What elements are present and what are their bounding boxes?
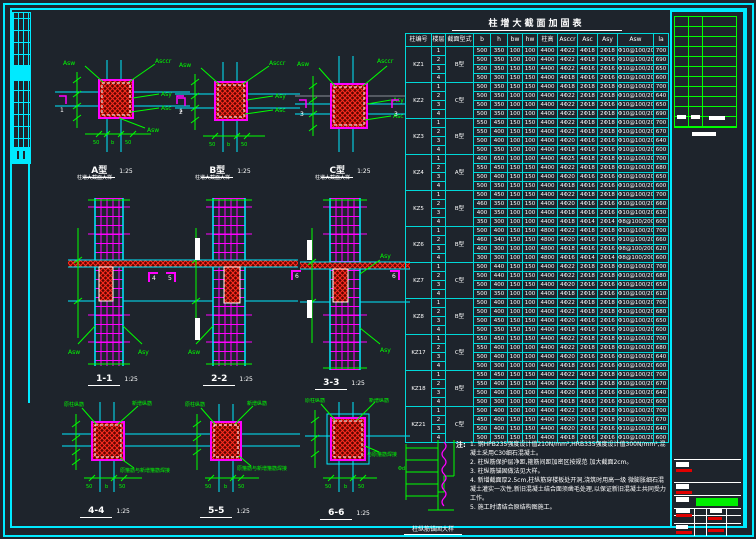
floor-cell: 1: [432, 47, 446, 56]
dim-50: 50: [325, 484, 331, 490]
table-cell: 4400: [538, 74, 558, 83]
table-cell: 300: [491, 74, 508, 83]
figure-name: 柱纵筋锚固大样: [404, 526, 462, 535]
notes-block: 注: 1. 钢HPB235强度设计值210N/mm²,HRB335强度设计值30…: [470, 440, 668, 512]
table-cell: 4Φ16: [578, 137, 598, 146]
table-cell: 100: [508, 353, 523, 362]
label-asy: Asy: [138, 349, 149, 356]
table-cell: 640: [654, 425, 669, 434]
table-cell: 4Φ20: [558, 425, 578, 434]
table-cell: 150: [508, 326, 523, 335]
table-cell: 2Φ18: [598, 308, 618, 317]
table-cell: 2Φ18: [598, 371, 618, 380]
table-cell: 4Φ16: [578, 245, 598, 254]
left-strip-line: [28, 163, 30, 403]
table-cell: 500: [474, 74, 491, 83]
callout-1: 1: [60, 107, 64, 114]
table-row: 340030010010048004Φ184Φ162Φ16Φ8@100/2006…: [406, 245, 669, 254]
table-cell: 350: [491, 200, 508, 209]
table-cell: 2Φ18: [578, 344, 598, 353]
section-6-6-drawing: 原柱纵筋 新增纵筋 与原箍筋焊接 50 b 50: [305, 398, 410, 498]
table-cell: 150: [508, 182, 523, 191]
figure-title: 3-31:25: [300, 370, 380, 389]
table-cell: 500: [474, 173, 491, 182]
table-cell: 2Φ16: [578, 425, 598, 434]
table-cell: 4800: [538, 245, 558, 254]
table-cell: 4Φ22: [558, 164, 578, 173]
table-cell: Φ10@100/200: [618, 416, 654, 425]
table-cell: 150: [508, 416, 523, 425]
figure-scale: 1:25: [351, 380, 364, 387]
table-cell: 450: [491, 335, 508, 344]
table-cell: 2Φ18: [598, 155, 618, 164]
table-cell: 100: [523, 47, 538, 56]
table-cell: 670: [654, 416, 669, 425]
table-cell: 100: [508, 137, 523, 146]
section-type-cell: A型: [446, 155, 474, 191]
table-row: KZ71C型50044015015044004Φ222Φ182Φ18Φ10@10…: [406, 263, 669, 272]
label-original-bars: 原柱纵筋: [64, 401, 84, 408]
table-cell: 2Φ16: [598, 326, 618, 335]
table-cell: 2Φ16: [598, 362, 618, 371]
table-row: KZ181B型55045015015044004Φ224Φ182Φ18Φ10@1…: [406, 371, 669, 380]
table-cell: 2Φ16: [578, 281, 598, 290]
table-cell: Φ10@100/200: [618, 371, 654, 380]
figure-title: 1-11:25: [68, 366, 158, 385]
table-cell: 500: [474, 56, 491, 65]
table-cell: 500: [474, 92, 491, 101]
table-cell: 2Φ16: [598, 182, 618, 191]
table-cell: 4Φ16: [578, 317, 598, 326]
strip-notch: [17, 151, 19, 159]
floor-cell: 3: [432, 353, 446, 362]
table-cell: 150: [508, 335, 523, 344]
floor-cell: 4: [432, 182, 446, 191]
table-cell: 670: [654, 128, 669, 137]
title-block-label: [676, 484, 689, 489]
revision-table-line: [702, 17, 703, 127]
table-cell: 4400: [538, 407, 558, 416]
table-cell: 2Φ14: [598, 218, 618, 227]
strip-notch: [23, 151, 25, 159]
signature-text: [709, 116, 725, 120]
label-asc: Asc: [275, 107, 286, 114]
table-cell: 700: [654, 83, 669, 92]
table-cell: Φ10@100/200: [618, 335, 654, 344]
table-cell: 4Φ22: [558, 371, 578, 380]
table-cell: 150: [508, 236, 523, 245]
table-cell: 500: [474, 83, 491, 92]
table-cell: 4Φ22: [558, 191, 578, 200]
table-cell: 2Φ18: [578, 407, 598, 416]
figure-scale: 1:25: [357, 168, 370, 175]
table-cell: 4400: [538, 191, 558, 200]
dim-50: 50: [119, 484, 125, 490]
table-cell: 100: [508, 344, 523, 353]
table-cell: 4400: [538, 65, 558, 74]
table-cell: 2Φ18: [598, 272, 618, 281]
table-cell: 100: [508, 308, 523, 317]
label-asw: Asw: [63, 60, 75, 67]
title-block-line: [706, 508, 707, 536]
table-cell: 150: [523, 83, 538, 92]
table-cell: 500: [474, 182, 491, 191]
section-type-cell: B型: [446, 119, 474, 155]
table-cell: 550: [474, 335, 491, 344]
table-cell: 150: [523, 182, 538, 191]
table-header-cell: h: [491, 34, 508, 47]
table-cell: 2Φ16: [598, 353, 618, 362]
signature-text: [691, 115, 700, 119]
floor-cell: 2: [432, 272, 446, 281]
table-cell: 450: [474, 416, 491, 425]
drawing-title-bar: [696, 498, 738, 506]
table-cell: 700: [654, 371, 669, 380]
table-cell: 2Φ18: [598, 416, 618, 425]
table-cell: Φ10@100/200: [618, 263, 654, 272]
table-cell: 4400: [538, 272, 558, 281]
table-cell: 400: [491, 425, 508, 434]
floor-cell: 4: [432, 254, 446, 263]
table-cell: 660: [654, 236, 669, 245]
table-cell: 500: [474, 110, 491, 119]
table-cell: 150: [508, 227, 523, 236]
table-cell: 100: [508, 155, 523, 164]
table-cell: 440: [491, 272, 508, 281]
elevation-3-3-figure: Asy Asy 3-31:25: [300, 198, 410, 392]
floor-cell: 1: [432, 119, 446, 128]
table-cell: 500: [474, 308, 491, 317]
floor-cell: 4: [432, 398, 446, 407]
notes-heading: 注:: [456, 440, 466, 450]
table-cell: 2Φ16: [578, 362, 598, 371]
table-header-cell: Asccr: [558, 34, 578, 47]
figure-name: 4-4: [80, 506, 112, 518]
column-id-cell: KZ8: [406, 299, 432, 335]
title-block-label: [676, 497, 689, 502]
table-row: 430030010010048004Φ164Φ142Φ14Φ8@100/2006…: [406, 254, 669, 263]
floor-cell: 1: [432, 371, 446, 380]
table-cell: 150: [508, 263, 523, 272]
table-row: KZ211C型50040010010044004Φ222Φ182Φ18Φ10@1…: [406, 407, 669, 416]
title-block-label: [710, 509, 722, 513]
table-cell: 100: [523, 92, 538, 101]
table-cell: 100: [508, 92, 523, 101]
table-cell: Φ10@100/200: [618, 200, 654, 209]
title-block-label: [676, 509, 690, 513]
note-item: 2. 柱纵筋保护层净距,箍筋间距加密区按规范 加大截面2cm。: [470, 458, 668, 467]
table-cell: 150: [523, 326, 538, 335]
label-new-bars: 新增纵筋: [247, 400, 267, 407]
table-cell: 2Φ18: [598, 227, 618, 236]
table-row: 340035010010044004Φ184Φ162Φ16Φ10@100/200…: [406, 209, 669, 218]
table-header-cell: hw: [523, 34, 538, 47]
table-cell: Φ10@100/200: [618, 110, 654, 119]
table-header-cell: 楼层: [432, 34, 446, 47]
elevation-2-2-drawing: Asw: [188, 198, 298, 366]
floor-cell: 1: [432, 191, 446, 200]
table-cell: 2Φ18: [578, 92, 598, 101]
table-cell: 100: [523, 254, 538, 263]
table-cell: 150: [523, 119, 538, 128]
table-cell: 2Φ16: [598, 398, 618, 407]
section-type-cell: B型: [446, 47, 474, 83]
table-cell: Φ10@100/200: [618, 290, 654, 299]
floor-cell: 4: [432, 290, 446, 299]
table-cell: 100: [523, 398, 538, 407]
dim-50: 50: [209, 142, 215, 148]
floor-cell: 2: [432, 236, 446, 245]
table-cell: 350: [491, 65, 508, 74]
table-cell: 4Φ18: [558, 83, 578, 92]
table-cell: 100: [523, 290, 538, 299]
note-item: 4. 新增截面厚2.5cm,柱纵筋穿楼板处开洞,浇筑时用高一级 微膨胀细石混凝土…: [470, 476, 668, 503]
table-cell: 4Φ16: [578, 326, 598, 335]
table-cell: 100: [523, 344, 538, 353]
table-cell: 4400: [538, 281, 558, 290]
left-binding-strip: [12, 12, 31, 164]
table-header-cell: la: [654, 34, 669, 47]
table-cell: 4Φ22: [558, 299, 578, 308]
table-cell: 2Φ18: [578, 335, 598, 344]
table-cell: 2Φ18: [578, 83, 598, 92]
table-cell: Φ10@100/200: [618, 281, 654, 290]
table-cell: 4Φ16: [578, 236, 598, 245]
callout-6: 6: [291, 270, 301, 280]
table-cell: 2Φ18: [578, 416, 598, 425]
table-row: 435030010010044004Φ184Φ142Φ14Φ8@100/2006…: [406, 218, 669, 227]
table-cell: Φ10@100/200: [618, 317, 654, 326]
table-cell: 350: [491, 146, 508, 155]
table-cell: 100: [508, 254, 523, 263]
table-cell: 2Φ16: [598, 245, 618, 254]
table-cell: 500: [474, 326, 491, 335]
table-cell: 4Φ18: [578, 371, 598, 380]
table-cell: 4400: [538, 416, 558, 425]
table-cell: 4Φ20: [558, 416, 578, 425]
title-block-line: [674, 495, 741, 496]
table-cell: 150: [508, 119, 523, 128]
table-cell: 150: [523, 425, 538, 434]
table-cell: 100: [508, 407, 523, 416]
table-cell: 150: [508, 74, 523, 83]
section-cut-marker: [307, 300, 312, 318]
elevation-2-2-figure: Asw 2-21:25: [188, 198, 298, 388]
table-cell: Φ10@100/200: [618, 137, 654, 146]
table-cell: 450: [491, 191, 508, 200]
section-5-5-drawing: 原柱纵筋 新增纵筋 原箍筋与新增箍筋焊接 50 b 50: [185, 400, 300, 498]
title-block-value: [676, 531, 692, 534]
table-cell: 4400: [538, 200, 558, 209]
table-cell: 500: [474, 290, 491, 299]
table-cell: 500: [474, 272, 491, 281]
table-cell: 150: [523, 191, 538, 200]
floor-cell: 3: [432, 281, 446, 290]
table-cell: 100: [508, 218, 523, 227]
table-cell: 610: [654, 290, 669, 299]
table-cell: 670: [654, 380, 669, 389]
table-cell: 4Φ18: [578, 227, 598, 236]
table-cell: 550: [474, 344, 491, 353]
table-cell: 150: [523, 281, 538, 290]
table-cell: 400: [474, 155, 491, 164]
table-cell: 4400: [538, 353, 558, 362]
table-cell: 150: [508, 65, 523, 74]
table-cell: 680: [654, 308, 669, 317]
table-cell: 150: [508, 128, 523, 137]
table-cell: Φ10@100/200: [618, 155, 654, 164]
table-cell: 150: [523, 263, 538, 272]
figure-title: 5-51:25: [185, 498, 265, 517]
table-cell: 4400: [538, 425, 558, 434]
table-cell: 550: [474, 380, 491, 389]
table-cell: Φ10@100/200: [618, 380, 654, 389]
table-cell: 640: [654, 92, 669, 101]
label-asccr: Asccr: [377, 58, 394, 65]
table-cell: 690: [654, 110, 669, 119]
table-cell: 620: [654, 245, 669, 254]
note-item: 3. 柱纵筋锚固做法见大样。: [470, 467, 668, 476]
table-cell: 4800: [538, 236, 558, 245]
table-cell: 500: [474, 353, 491, 362]
table-cell: 4Φ22: [558, 272, 578, 281]
floor-cell: 1: [432, 83, 446, 92]
table-cell: 550: [474, 128, 491, 137]
table-cell: 4Φ20: [558, 353, 578, 362]
figure-name: 2-2: [203, 374, 235, 386]
table-cell: Φ10@100/200: [618, 182, 654, 191]
table-cell: 4Φ18: [578, 299, 598, 308]
callout-5: 5: [166, 272, 176, 282]
floor-cell: 3: [432, 389, 446, 398]
table-cell: 100: [523, 362, 538, 371]
table-row: 450035010010044004Φ184Φ162Φ16Φ10@100/200…: [406, 146, 669, 155]
section-type-cell: C型: [446, 335, 474, 371]
table-cell: 2Φ18: [598, 47, 618, 56]
floor-cell: 2: [432, 128, 446, 137]
table-cell: 2Φ16: [578, 353, 598, 362]
table-cell: 4400: [538, 380, 558, 389]
table-cell: 650: [654, 173, 669, 182]
floor-cell: 2: [432, 308, 446, 317]
title-block-value: [708, 517, 722, 520]
column-id-cell: KZ17: [406, 335, 432, 371]
table-cell: 500: [474, 146, 491, 155]
table-cell: 100: [508, 362, 523, 371]
section-a-drawing: Asw Asccr Asy Asc Asw 50 b 50 1 1: [55, 56, 190, 156]
table-cell: Φ10@100/200: [618, 47, 654, 56]
floor-cell: 3: [432, 317, 446, 326]
section-type-cell: C型: [446, 83, 474, 119]
table-cell: 2Φ16: [598, 389, 618, 398]
table-cell: Φ10@100/200: [618, 209, 654, 218]
table-cell: 340: [491, 236, 508, 245]
table-cell: Φ8@100/200: [618, 218, 654, 227]
table-cell: 2Φ18: [598, 128, 618, 137]
table-cell: 4Φ22: [558, 335, 578, 344]
floor-cell: 2: [432, 164, 446, 173]
table-cell: 680: [654, 272, 669, 281]
table-cell: 450: [491, 164, 508, 173]
table-cell: 350: [491, 56, 508, 65]
table-cell: 100: [508, 389, 523, 398]
table-row: 350040010010044004Φ202Φ162Φ16Φ10@100/200…: [406, 353, 669, 362]
table-cell: 150: [523, 371, 538, 380]
table-cell: 4400: [538, 362, 558, 371]
strip-label: [692, 132, 716, 136]
table-cell: 450: [491, 371, 508, 380]
table-cell: 4400: [538, 92, 558, 101]
notes-list: 1. 钢HPB235强度设计值210N/mm²,HRB335强度设计值300N/…: [470, 440, 668, 512]
table-cell: 4Φ22: [558, 110, 578, 119]
table-cell: 4Φ16: [578, 200, 598, 209]
table-cell: 150: [508, 272, 523, 281]
table-cell: 4Φ14: [578, 254, 598, 263]
table-cell: 150: [523, 173, 538, 182]
table-cell: 550: [474, 164, 491, 173]
section-4-4-drawing: 原柱纵筋 新增纵筋 原箍筋与新增箍筋焊接 50 b 50: [62, 398, 197, 498]
table-cell: 660: [654, 200, 669, 209]
figure-scale: 1:25: [124, 376, 137, 383]
floor-cell: 3: [432, 173, 446, 182]
table-cell: 700: [654, 263, 669, 272]
table-cell: 600: [654, 146, 669, 155]
table-cell: 440: [491, 263, 508, 272]
table-cell: Φ10@100/200: [618, 164, 654, 173]
table-cell: 4400: [538, 209, 558, 218]
table-cell: 4400: [538, 47, 558, 56]
table-cell: 600: [654, 362, 669, 371]
table-cell: 4400: [538, 371, 558, 380]
table-cell: 400: [491, 407, 508, 416]
table-cell: 500: [474, 47, 491, 56]
table-cell: 350: [491, 101, 508, 110]
table-cell: 600: [654, 182, 669, 191]
table-cell: 460: [474, 200, 491, 209]
table-cell: 4Φ22: [558, 65, 578, 74]
title-block-line: [694, 508, 695, 536]
table-cell: 100: [523, 389, 538, 398]
table-cell: 100: [523, 101, 538, 110]
section-type-cell: B型: [446, 191, 474, 227]
table-cell: 150: [523, 236, 538, 245]
table-row: 255040010010044004Φ222Φ182Φ18Φ10@100/200…: [406, 344, 669, 353]
table-cell: 100: [523, 110, 538, 119]
dim-b: b: [111, 140, 114, 146]
signature-text: [677, 115, 686, 119]
table-cell: 640: [654, 389, 669, 398]
label-asccr: Asccr: [155, 58, 172, 65]
table-cell: 4Φ18: [558, 362, 578, 371]
table-header-cell: Asc: [578, 34, 598, 47]
dim-50: 50: [205, 484, 211, 490]
table-cell: Φ10@100/200: [618, 326, 654, 335]
table-cell: 500: [474, 281, 491, 290]
table-row: 250040010010044004Φ224Φ182Φ18Φ10@100/200…: [406, 308, 669, 317]
table-cell: 100: [523, 146, 538, 155]
table-cell: 4400: [538, 290, 558, 299]
table-cell: 4Φ25: [558, 155, 578, 164]
table-cell: 2Φ18: [598, 83, 618, 92]
dim-50: 50: [358, 484, 364, 490]
table-cell: 4Φ20: [558, 137, 578, 146]
table-row: 350040010010044004Φ204Φ162Φ16Φ10@100/200…: [406, 137, 669, 146]
table-cell: 4400: [538, 146, 558, 155]
table-row: 450035010010044004Φ182Φ162Φ16Φ10@100/200…: [406, 290, 669, 299]
table-cell: 4Φ22: [558, 380, 578, 389]
floor-cell: 3: [432, 65, 446, 74]
table-row: 350040015015044004Φ204Φ162Φ16Φ10@100/200…: [406, 173, 669, 182]
